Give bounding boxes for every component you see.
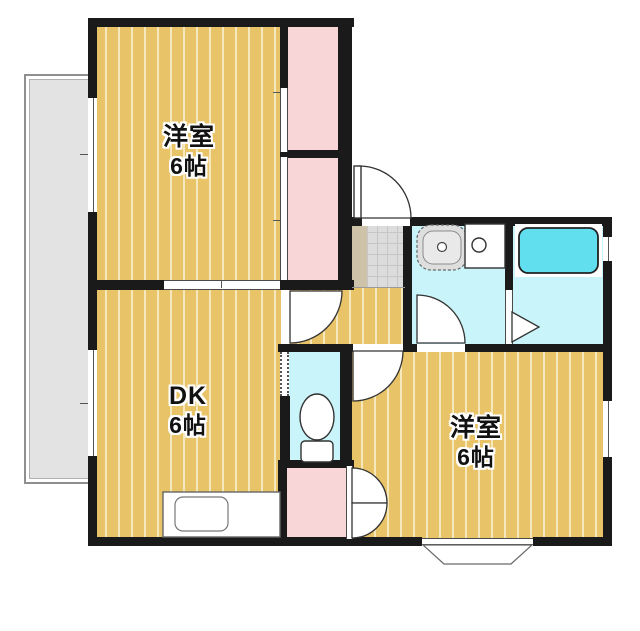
floor-closet-bottom [286,466,346,539]
door-tick [273,92,280,93]
wall-dk-toilet [280,396,290,462]
floor-bathroom [511,224,604,346]
wall-washroom-left [403,217,412,352]
wall-west2-top [465,344,612,352]
closet-bottom-door-track [346,466,353,539]
floor-closet-middle [288,157,338,286]
floor-hallway [286,288,408,346]
door-tick [273,220,280,221]
wall-right-1 [603,217,612,237]
wall-bottom-right [533,537,612,546]
balcony-deck [29,79,89,479]
wall-west1-dk-left [88,280,164,290]
wall-washroom-bath-divider [505,222,513,290]
door-tick [221,281,222,288]
toilet-accordion-door [280,352,289,396]
label-dk: DK 6帖 [116,382,260,440]
room-name: DK [116,382,260,411]
window-west2-right [603,401,612,457]
closet-middle-sliding-door [280,157,288,280]
label-west-room-top: 洋室 6帖 [117,123,261,181]
closet-top-sliding-door [280,88,288,152]
floor-closet-top [288,27,338,151]
entry-door-leaf [354,166,361,218]
west2-door-opening [353,344,403,352]
dk-door-opening [281,290,290,344]
wall-right-3 [603,457,612,546]
wall-top [88,18,354,27]
room-name: 洋室 [404,414,548,443]
bay-window-opening [422,538,533,545]
room-size: 6帖 [116,411,260,440]
label-west-room-bottom: 洋室 6帖 [404,414,548,472]
floor-plan: 洋室 6帖 DK 6帖 洋室 6帖 [0,0,640,631]
wall-closet-bottom-left [278,466,287,539]
wall-left-1 [88,18,97,98]
wall-right-2 [603,261,612,401]
wall-west1-dk-right [280,280,354,290]
room-name: 洋室 [117,123,261,152]
wall-entry-left [352,217,362,226]
wall-closet-front-upper [280,22,288,88]
west1-dk-sliding-door [164,280,280,290]
wall-bottom-left [88,537,422,546]
wall-mid-stub [403,344,417,352]
room-size: 6帖 [404,443,548,472]
entry-door-opening [362,217,410,226]
floor-washroom [408,224,506,346]
window-dk-left [88,350,97,456]
room-size: 6帖 [117,152,261,181]
entry-door-swing [359,166,411,218]
entry-step [352,221,367,288]
entry-tile-genkan [367,221,405,288]
wall-closet-right [338,18,352,290]
genkan-step-line [352,287,405,288]
bay-window [423,545,532,564]
window-tick [80,154,88,155]
bath-door-track [505,290,513,344]
window-bathroom-right [603,237,612,261]
window-tick [80,403,88,404]
wall-toilet-right [340,350,352,462]
washroom-door-opening [417,344,465,352]
floor-toilet [286,350,340,462]
balcony [24,74,94,484]
window-west1-left [88,98,97,212]
wall-left-3 [88,456,97,546]
